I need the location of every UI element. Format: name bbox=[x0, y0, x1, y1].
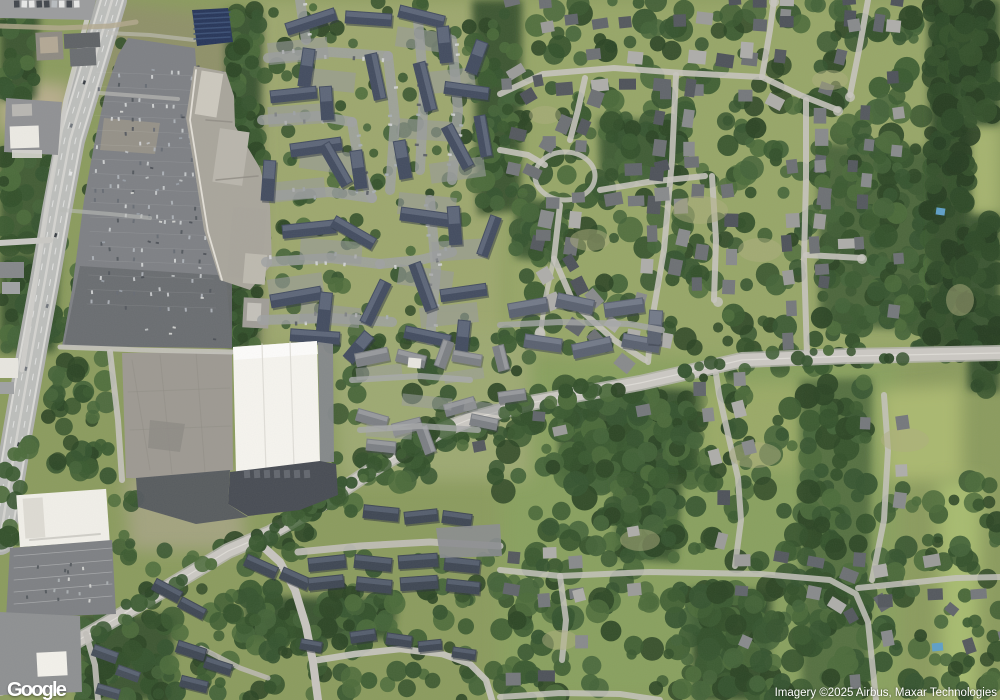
svg-text:Google: Google bbox=[7, 679, 67, 700]
svg-text:Imagery ©2025 Airbus, Maxar Te: Imagery ©2025 Airbus, Maxar Technologies bbox=[775, 687, 998, 699]
